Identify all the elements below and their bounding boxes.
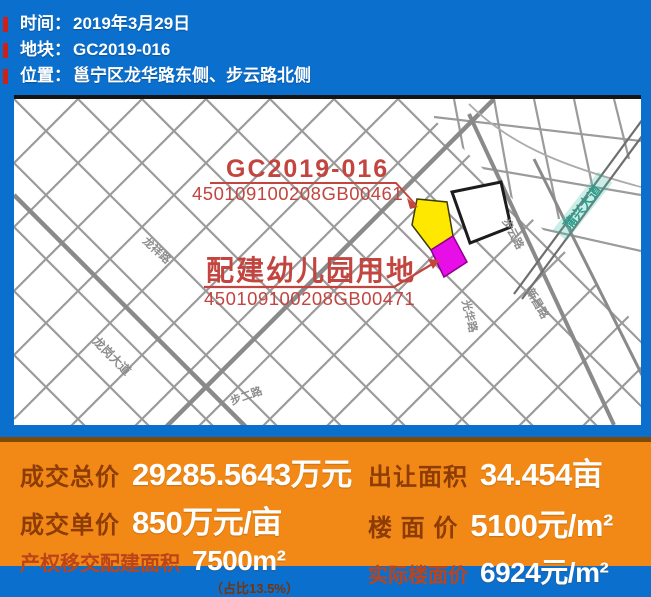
stat-actual-floor-price-value: 6924元/m²: [480, 551, 608, 591]
header-row-date: 时间：2019年3月29日: [0, 11, 651, 37]
header: 时间：2019年3月29日 地块：GC2019-016 位置：邕宁区龙华路东侧、…: [0, 11, 651, 89]
road-label-longxiang: 龙祥路: [139, 233, 174, 267]
stat-transfer-area-value: 7500m²: [192, 545, 286, 577]
stat-unit-price: 成交单价 850万元/亩: [20, 497, 352, 542]
header-row-location: 位置：邕宁区龙华路东侧、步云路北侧: [0, 63, 651, 89]
stat-total-price-value: 29285.5643万元: [132, 449, 352, 494]
stat-grant-area-label: 出让面积: [368, 457, 468, 492]
date-value: 2019年3月29日: [73, 14, 190, 33]
stat-grant-area: 出让面积 34.454亩: [368, 449, 613, 494]
adjacent-parcel-outline: [452, 182, 511, 243]
stat-total-price: 成交总价 29285.5643万元: [20, 449, 352, 494]
stat-grant-area-value: 34.454亩: [480, 449, 602, 494]
location-label: 位置：: [20, 66, 71, 85]
map-svg: 蒲兴大道 龙祥路 龙岗大道 步二路 步云路 新昌路 光华路 GC2019-016…: [14, 99, 641, 425]
annotation-plot-parcel-no: 450109100208GB00461: [192, 183, 403, 204]
stat-transfer-area: 产权移交配建面积 7500m²: [20, 545, 352, 577]
road-label-xinchang: 新昌路: [523, 286, 552, 322]
plot-value: GC2019-016: [73, 40, 170, 59]
red-tick-icon: [3, 43, 8, 58]
header-row-plot: 地块：GC2019-016: [0, 37, 651, 63]
stat-floor-price-label: 楼 面 价: [368, 508, 458, 543]
annotation-kindergarten-parcel-no: 450109100208GB00471: [204, 288, 415, 309]
stat-transfer-area-note: （占比13.5%）: [210, 578, 352, 597]
stat-unit-price-label: 成交单价: [20, 505, 120, 540]
stats-right-column: 出让面积 34.454亩 楼 面 价 5100元/m² 实际楼面价 6924元/…: [368, 449, 613, 597]
date-label: 时间：: [20, 14, 71, 33]
red-tick-icon: [3, 17, 8, 32]
red-tick-icon: [3, 69, 8, 84]
location-value: 邕宁区龙华路东侧、步云路北侧: [73, 66, 311, 85]
road-label-puxing: 蒲兴大道: [560, 182, 604, 232]
cadastral-map: 蒲兴大道 龙祥路 龙岗大道 步二路 步云路 新昌路 光华路 GC2019-016…: [14, 95, 641, 425]
plot-label: 地块：: [20, 40, 71, 59]
stat-actual-floor-price: 实际楼面价 6924元/m²: [368, 551, 613, 591]
stat-total-price-label: 成交总价: [20, 457, 120, 492]
stat-unit-price-value: 850万元/亩: [132, 497, 282, 542]
road-label-guanghua: 光华路: [459, 297, 481, 334]
annotation-plot-code: GC2019-016: [226, 155, 389, 183]
stat-floor-price: 楼 面 价 5100元/m²: [368, 500, 613, 545]
annotation-kindergarten-label: 配建幼儿园用地: [206, 255, 416, 286]
stats-left-column: 成交总价 29285.5643万元 成交单价 850万元/亩 产权移交配建面积 …: [20, 449, 352, 597]
stats-panel: 成交总价 29285.5643万元 成交单价 850万元/亩 产权移交配建面积 …: [0, 437, 651, 566]
stat-floor-price-value: 5100元/m²: [470, 500, 612, 545]
road-label-buer: 步二路: [228, 383, 265, 408]
stat-transfer-area-label: 产权移交配建面积: [20, 547, 180, 576]
stat-actual-floor-price-label: 实际楼面价: [368, 559, 468, 588]
